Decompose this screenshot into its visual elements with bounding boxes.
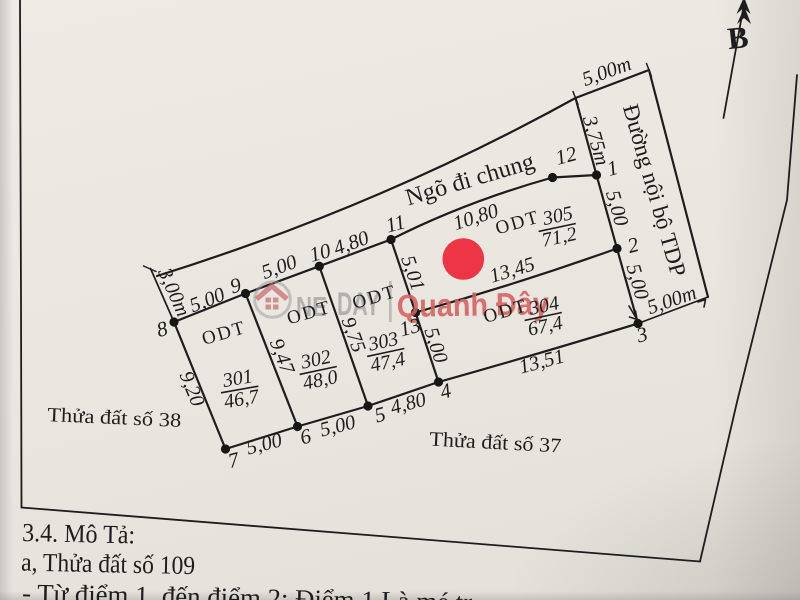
- svg-text:2: 2: [625, 232, 642, 258]
- svg-text:ODT: ODT: [200, 317, 249, 350]
- svg-text:13,51: 13,51: [517, 345, 567, 378]
- svg-text:13,45: 13,45: [487, 253, 538, 288]
- svg-text:5: 5: [372, 402, 388, 428]
- svg-text:a, Thửa đất số 109: a, Thửa đất số 109: [21, 548, 196, 581]
- svg-text:5,00: 5,00: [244, 429, 284, 459]
- svg-text:5,00: 5,00: [259, 251, 300, 284]
- svg-text:5,00: 5,00: [622, 262, 653, 303]
- svg-text:9,20: 9,20: [175, 368, 209, 410]
- svg-text:7: 7: [225, 447, 243, 473]
- svg-text:11: 11: [383, 209, 408, 237]
- svg-text:4,80: 4,80: [388, 389, 428, 420]
- svg-text:Thửa đất số 38: Thửa đất số 38: [47, 404, 182, 432]
- svg-text:Ngõ đi chung: Ngõ đi chung: [403, 149, 538, 212]
- svg-text:3,00m: 3,00m: [153, 264, 194, 320]
- svg-text:4,80: 4,80: [331, 227, 372, 260]
- svg-text:10,80: 10,80: [450, 200, 501, 235]
- svg-text:3,75m: 3,75m: [578, 112, 613, 168]
- svg-text:6: 6: [297, 423, 314, 449]
- svg-text:12: 12: [553, 141, 580, 170]
- svg-text:ODT: ODT: [493, 207, 542, 240]
- svg-text:5,00: 5,00: [187, 284, 228, 317]
- svg-text:3.4. Mô Tả:: 3.4. Mô Tả:: [22, 518, 136, 549]
- svg-text:ODT: ODT: [285, 297, 334, 330]
- svg-text:5,00: 5,00: [601, 188, 632, 229]
- svg-text:4: 4: [437, 378, 454, 404]
- svg-text:B: B: [726, 19, 750, 56]
- svg-text:9,47: 9,47: [265, 336, 299, 378]
- svg-text:5,00: 5,00: [420, 325, 452, 366]
- svg-text:8: 8: [154, 316, 171, 342]
- svg-text:5,00: 5,00: [318, 411, 358, 441]
- svg-text:- Từ điểm 1, đến điểm 2: Điểm: - Từ điểm 1, đến điểm 2: Điểm 1 Là mé tr: [22, 579, 473, 600]
- svg-text:Thửa đất số 37: Thửa đất số 37: [429, 429, 562, 458]
- svg-text:3: 3: [633, 322, 650, 348]
- svg-text:5,00m: 5,00m: [644, 282, 699, 319]
- svg-text:9: 9: [227, 272, 244, 298]
